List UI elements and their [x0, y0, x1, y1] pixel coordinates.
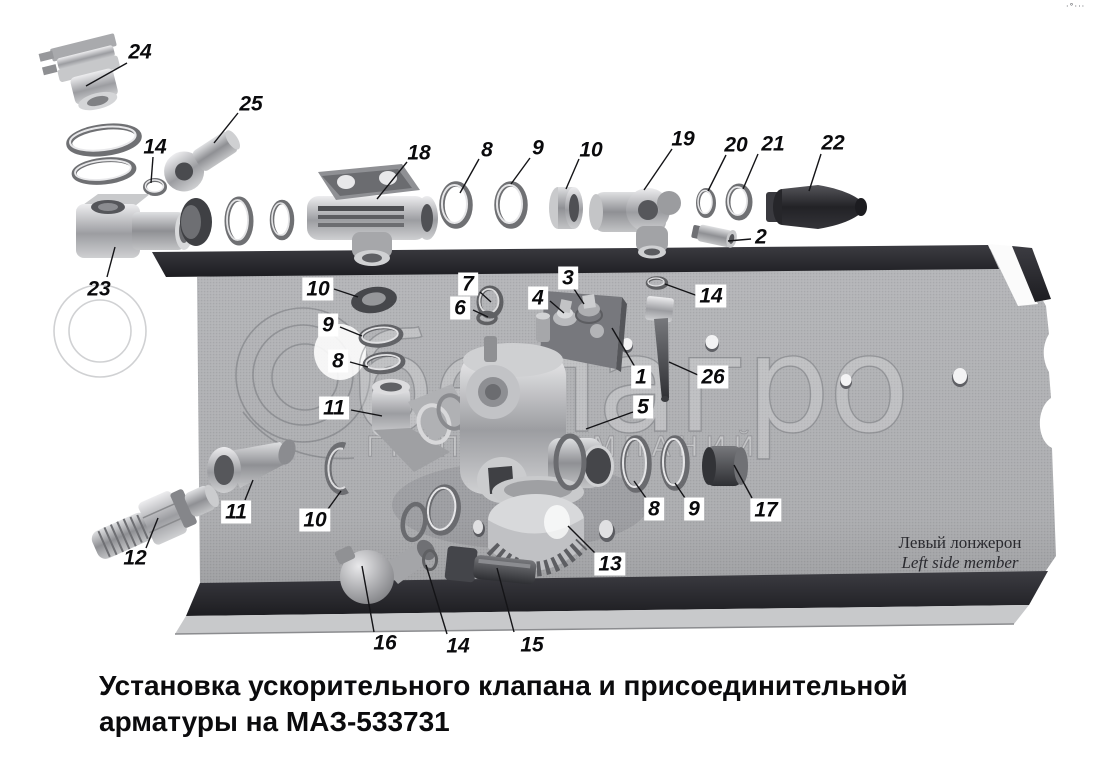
part-24-sensor: [38, 33, 131, 120]
part-oring-large: [68, 123, 141, 157]
diagram-caption: Установка ускорительного клапана и присо…: [99, 668, 908, 740]
part-8-oring-top: [442, 184, 470, 226]
part-10-sleeve-top: [549, 187, 583, 229]
part-9-oring-top: [497, 184, 525, 226]
leader-line-9: [511, 158, 530, 184]
part-20-washer: [698, 190, 714, 216]
beam-label-en: Left side member: [880, 553, 1040, 573]
corner-artifact-mark: ·°···: [1066, 2, 1085, 11]
part-oring-d: [272, 202, 292, 238]
part-23-elbow-fitting: [76, 194, 193, 258]
beam-label: Левый лонжерон Left side member: [880, 533, 1040, 573]
part-22-rubber-plug: [766, 185, 867, 229]
part-25-banjo-bolt: [156, 120, 247, 199]
parts-diagram: белагро ГРУППА КОМПАНИЙ: [0, 0, 1113, 772]
part-21-oring: [728, 186, 750, 218]
part-oring-c: [227, 199, 251, 243]
beam-label-ru: Левый лонжерон: [880, 533, 1040, 553]
leader-line-20: [708, 155, 726, 191]
diagram-canvas: белагро ГРУППА КОМПАНИЙ: [0, 0, 1113, 772]
caption-line-1: Установка ускорительного клапана и присо…: [99, 668, 908, 704]
part-oring-thin: [73, 157, 135, 185]
leader-line-10: [566, 159, 579, 189]
leader-line-19: [644, 149, 672, 190]
leader-line-8: [460, 159, 479, 193]
caption-line-2: арматуры на МАЗ-533731: [99, 704, 908, 740]
part-14-ring-top: [145, 180, 165, 194]
leader-line-21: [743, 154, 758, 189]
part-2-fitting: [691, 222, 739, 249]
part-ring-nut: [180, 198, 212, 246]
part-17-sleeve: [702, 446, 748, 486]
